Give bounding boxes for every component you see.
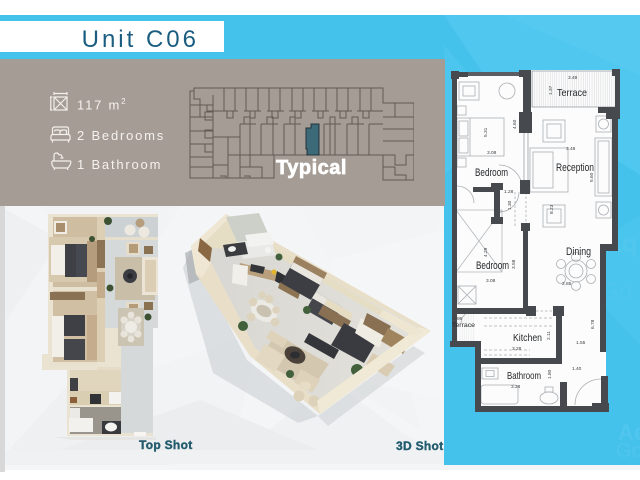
svg-text:3.08: 3.08 [487, 150, 497, 156]
svg-text:5.31: 5.31 [483, 127, 489, 137]
svg-text:Kitchen: Kitchen [513, 332, 542, 344]
svg-text:1.28: 1.28 [504, 189, 514, 195]
svg-text:0.96: 0.96 [453, 316, 463, 322]
svg-text:5.60: 5.60 [589, 172, 595, 182]
svg-text:4.29: 4.29 [483, 247, 489, 257]
svg-text:3.48: 3.48 [568, 75, 578, 81]
svg-text:1.30: 1.30 [507, 200, 513, 210]
svg-text:2.85: 2.85 [562, 281, 572, 287]
svg-text:Dining: Dining [566, 246, 591, 258]
svg-text:Go: Go [616, 440, 640, 462]
svg-text:3.58: 3.58 [511, 259, 517, 269]
svg-text:3.48: 3.48 [566, 146, 576, 152]
svg-text:Terrace: Terrace [452, 322, 475, 329]
svg-text:Bathroom: Bathroom [507, 370, 541, 382]
svg-text:3.08: 3.08 [486, 278, 496, 284]
svg-text:3.28: 3.28 [512, 346, 522, 352]
svg-text:6.78: 6.78 [590, 319, 596, 329]
svg-text:1.40: 1.40 [572, 366, 582, 372]
svg-text:1.37: 1.37 [548, 85, 554, 95]
svg-text:Bedroom: Bedroom [475, 167, 508, 179]
svg-text:Reception: Reception [556, 162, 594, 174]
svg-text:3.28: 3.28 [511, 384, 521, 390]
svg-text:8.23: 8.23 [549, 204, 555, 214]
svg-text:Terrace: Terrace [557, 87, 587, 99]
svg-text:1.80: 1.80 [547, 369, 553, 379]
svg-text:1.55: 1.55 [576, 340, 586, 346]
svg-text:Bedroom: Bedroom [476, 260, 509, 272]
svg-text:4.60: 4.60 [512, 119, 518, 129]
svg-text:2.11: 2.11 [546, 331, 552, 340]
